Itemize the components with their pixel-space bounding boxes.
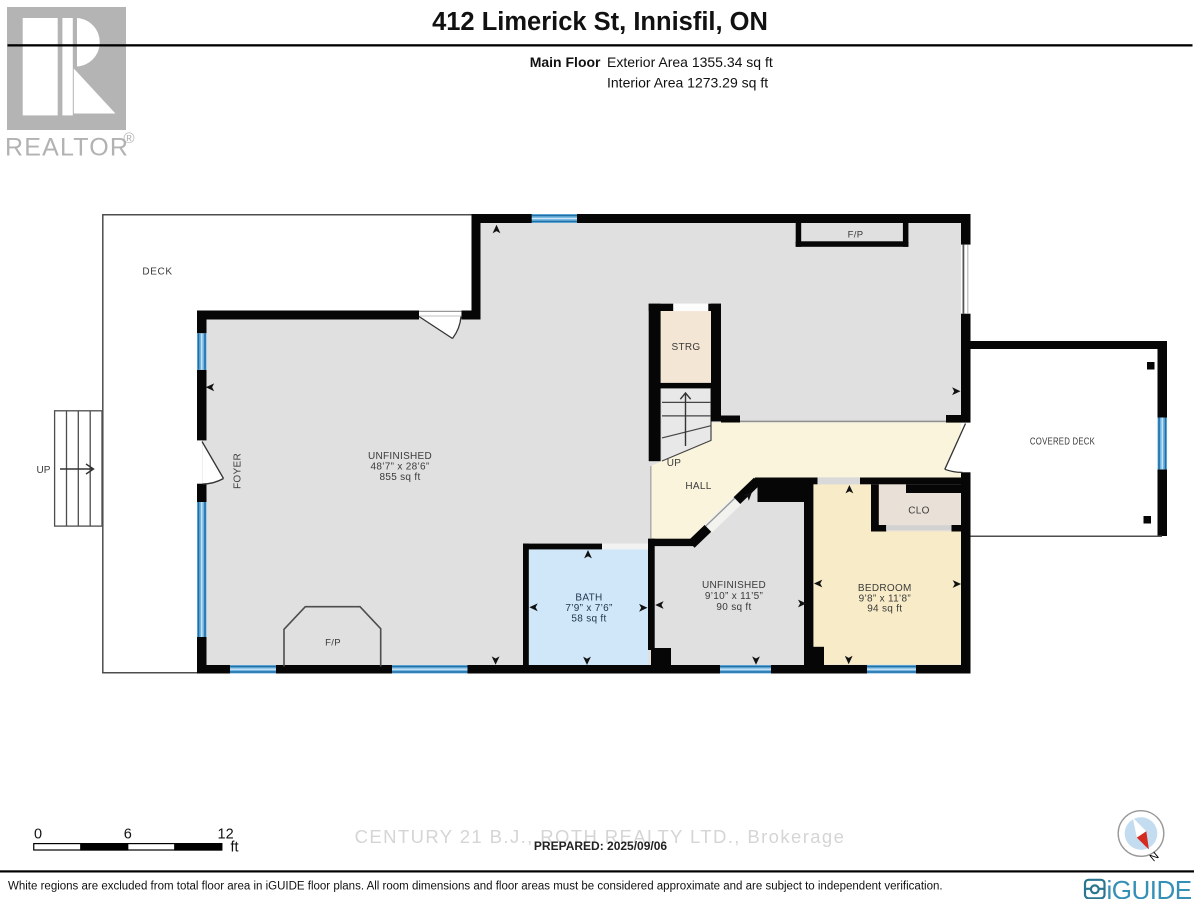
- svg-text:UNFINISHED: UNFINISHED: [368, 451, 432, 462]
- svg-text:REALTOR: REALTOR: [5, 134, 129, 162]
- svg-text:90 sq ft: 90 sq ft: [716, 602, 751, 613]
- svg-text:CLO: CLO: [908, 506, 929, 517]
- svg-text:ft: ft: [231, 840, 239, 856]
- svg-text:FOYER: FOYER: [233, 453, 244, 489]
- svg-text:94 sq ft: 94 sq ft: [867, 604, 902, 615]
- svg-text:0: 0: [34, 827, 42, 843]
- svg-text:48’7” x 28’6”: 48’7” x 28’6”: [371, 462, 430, 473]
- svg-text:UP: UP: [667, 458, 682, 469]
- svg-text:UP: UP: [37, 465, 51, 476]
- svg-text:F/P: F/P: [848, 230, 864, 241]
- svg-text:412 Limerick St, Innisfil, ON: 412 Limerick St, Innisfil, ON: [432, 8, 768, 36]
- svg-text:58 sq ft: 58 sq ft: [571, 613, 606, 624]
- svg-text:9’10” x 11’5”: 9’10” x 11’5”: [705, 591, 763, 602]
- svg-text:BEDROOM: BEDROOM: [858, 583, 912, 594]
- svg-text:HALL: HALL: [685, 481, 711, 492]
- svg-text:COVERED DECK: COVERED DECK: [1030, 436, 1095, 447]
- svg-text:White regions are excluded fro: White regions are excluded from total fl…: [8, 881, 943, 893]
- svg-text:Main Floor: Main Floor: [530, 54, 601, 70]
- svg-text:Interior Area 1273.29 sq ft: Interior Area 1273.29 sq ft: [607, 75, 768, 91]
- svg-text:F/P: F/P: [325, 638, 341, 649]
- svg-text:6: 6: [124, 827, 132, 843]
- svg-text:UNFINISHED: UNFINISHED: [702, 580, 766, 591]
- svg-text:Exterior Area 1355.34 sq ft: Exterior Area 1355.34 sq ft: [607, 54, 773, 70]
- svg-text:7’9” x 7’6”: 7’9” x 7’6”: [565, 603, 612, 614]
- svg-text:®: ®: [124, 130, 135, 147]
- svg-text:855 sq ft: 855 sq ft: [379, 472, 420, 483]
- svg-text:PREPARED: 2025/09/06: PREPARED: 2025/09/06: [534, 839, 668, 853]
- svg-text:BATH: BATH: [575, 592, 602, 603]
- svg-text:iGUIDE: iGUIDE: [1107, 875, 1192, 899]
- svg-text:DECK: DECK: [142, 267, 172, 278]
- svg-text:STRG: STRG: [672, 342, 701, 353]
